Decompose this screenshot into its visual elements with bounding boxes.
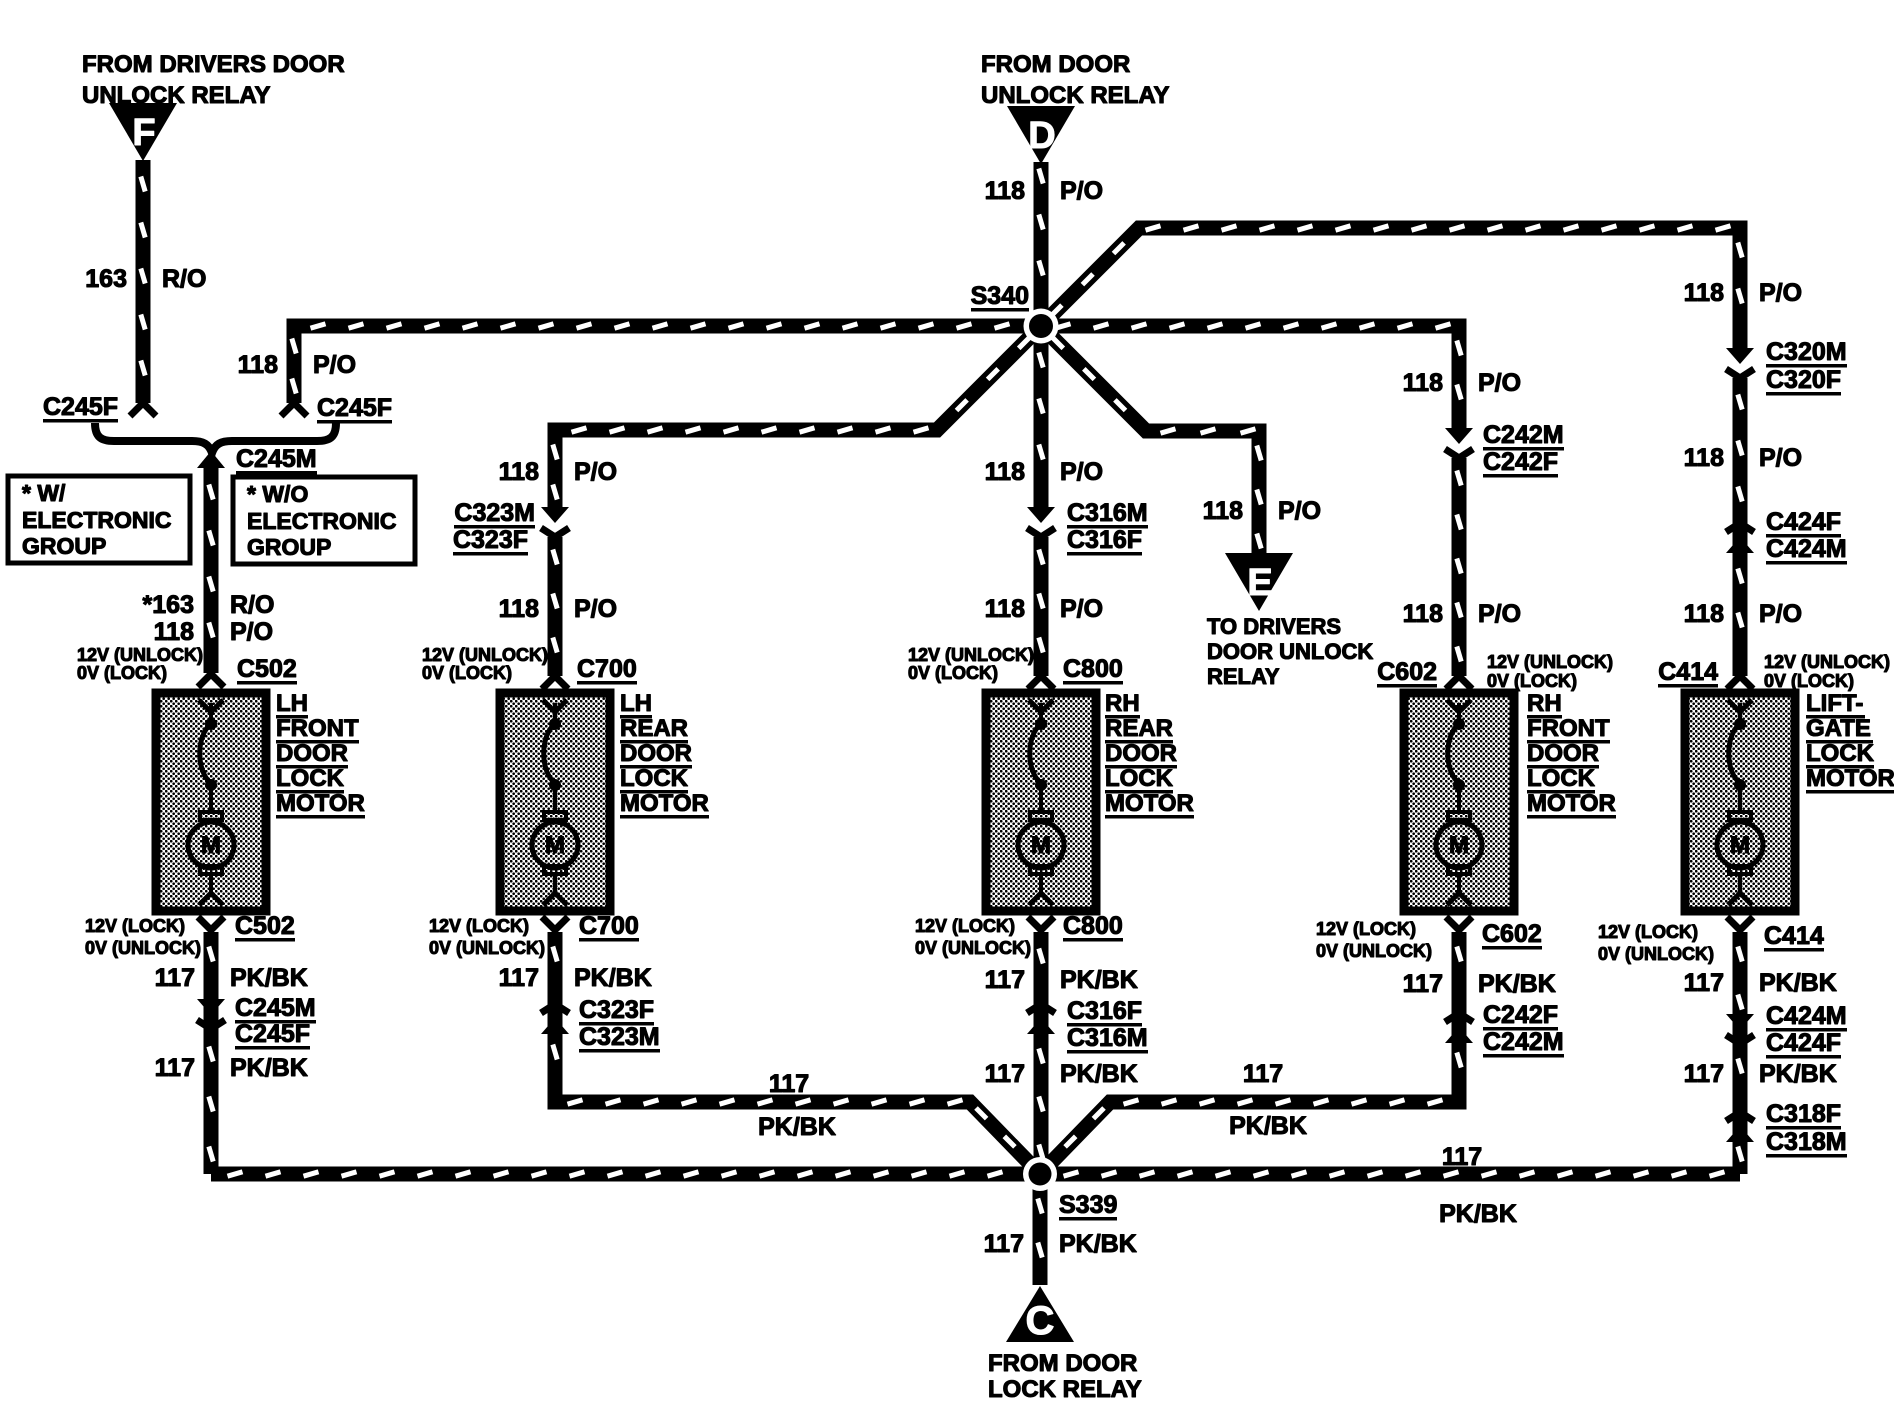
svg-text:RH: RH: [1527, 690, 1562, 717]
svg-text:12V (LOCK): 12V (LOCK): [429, 916, 529, 936]
svg-text:C245F: C245F: [235, 1020, 310, 1048]
svg-text:M: M: [545, 832, 565, 859]
svg-text:FRONT: FRONT: [276, 715, 359, 742]
svg-text:P/O: P/O: [574, 595, 617, 623]
svg-text:ELECTRONIC: ELECTRONIC: [22, 507, 172, 533]
svg-text:12V (LOCK): 12V (LOCK): [85, 916, 185, 936]
svg-text:C316F: C316F: [1067, 997, 1142, 1025]
svg-text:163: 163: [85, 265, 127, 293]
svg-text:P/O: P/O: [1759, 279, 1802, 307]
svg-text:C602: C602: [1377, 658, 1437, 686]
svg-text:RELAY: RELAY: [1207, 664, 1280, 689]
svg-text:118: 118: [1203, 497, 1243, 525]
svg-text:0V (UNLOCK): 0V (UNLOCK): [1598, 944, 1714, 964]
svg-text:12V (UNLOCK): 12V (UNLOCK): [1487, 652, 1613, 672]
svg-text:C245M: C245M: [236, 445, 317, 473]
svg-text:UNLOCK RELAY: UNLOCK RELAY: [82, 82, 270, 109]
svg-text:P/O: P/O: [1278, 497, 1321, 525]
svg-text:118: 118: [1684, 600, 1724, 628]
svg-text:REAR: REAR: [620, 715, 688, 742]
svg-text:MOTOR: MOTOR: [620, 790, 709, 817]
svg-text:C316M: C316M: [1067, 1024, 1148, 1052]
svg-text:C242F: C242F: [1483, 1001, 1558, 1029]
svg-text:F: F: [132, 112, 155, 154]
svg-text:118: 118: [238, 351, 278, 379]
svg-text:MOTOR: MOTOR: [1527, 790, 1616, 817]
svg-text:C424F: C424F: [1766, 508, 1841, 536]
svg-text:LOCK: LOCK: [620, 765, 689, 792]
svg-text:117: 117: [769, 1070, 809, 1098]
svg-text:MOTOR: MOTOR: [1105, 790, 1194, 817]
svg-text:117: 117: [985, 966, 1025, 994]
svg-text:LOCK RELAY: LOCK RELAY: [988, 1376, 1142, 1403]
svg-text:117: 117: [1684, 969, 1724, 997]
svg-text:LIFT-: LIFT-: [1806, 690, 1863, 717]
svg-text:C602: C602: [1482, 920, 1542, 948]
svg-text:117: 117: [155, 964, 195, 992]
svg-text:P/O: P/O: [1478, 600, 1521, 628]
svg-text:C700: C700: [577, 655, 637, 683]
svg-text:FROM DRIVERS DOOR: FROM DRIVERS DOOR: [82, 51, 345, 78]
svg-text:PK/BK: PK/BK: [1759, 969, 1837, 997]
svg-text:FROM DOOR: FROM DOOR: [981, 51, 1130, 78]
svg-text:C320F: C320F: [1766, 366, 1841, 394]
svg-text:LOCK: LOCK: [1527, 765, 1596, 792]
svg-text:117: 117: [985, 1060, 1025, 1088]
svg-text:PK/BK: PK/BK: [1759, 1060, 1837, 1088]
svg-text:12V (LOCK): 12V (LOCK): [1598, 922, 1698, 942]
svg-text:0V (UNLOCK): 0V (UNLOCK): [85, 938, 201, 958]
svg-text:DOOR: DOOR: [620, 740, 692, 767]
svg-text:ELECTRONIC: ELECTRONIC: [247, 508, 397, 534]
svg-text:PK/BK: PK/BK: [230, 964, 308, 992]
svg-text:117: 117: [155, 1054, 195, 1082]
svg-text:* W/: * W/: [22, 480, 66, 506]
svg-text:C323M: C323M: [579, 1023, 660, 1051]
svg-text:0V (UNLOCK): 0V (UNLOCK): [915, 938, 1031, 958]
svg-text:C: C: [1026, 1299, 1055, 1343]
svg-text:C242M: C242M: [1483, 421, 1564, 449]
svg-text:12V (UNLOCK): 12V (UNLOCK): [908, 645, 1034, 665]
svg-text:DOOR: DOOR: [276, 740, 348, 767]
svg-text:12V (UNLOCK): 12V (UNLOCK): [77, 645, 203, 665]
svg-text:118: 118: [499, 458, 539, 486]
svg-text:118: 118: [985, 595, 1025, 623]
svg-text:117: 117: [499, 964, 539, 992]
svg-text:12V (UNLOCK): 12V (UNLOCK): [422, 645, 548, 665]
svg-text:R/O: R/O: [162, 265, 206, 293]
svg-text:C320M: C320M: [1766, 338, 1847, 366]
svg-text:D: D: [1028, 115, 1055, 157]
svg-text:M: M: [1449, 832, 1469, 859]
svg-text:P/O: P/O: [1759, 600, 1802, 628]
svg-text:PK/BK: PK/BK: [574, 964, 652, 992]
svg-text:12V (UNLOCK): 12V (UNLOCK): [1764, 652, 1890, 672]
svg-text:PK/BK: PK/BK: [1060, 1060, 1138, 1088]
svg-text:P/O: P/O: [1060, 595, 1103, 623]
svg-text:C316M: C316M: [1067, 499, 1148, 527]
svg-text:C700: C700: [579, 912, 639, 940]
svg-text:C245F: C245F: [43, 393, 118, 421]
svg-text:REAR: REAR: [1105, 715, 1173, 742]
svg-text:LOCK: LOCK: [1105, 765, 1174, 792]
svg-text:P/O: P/O: [1478, 369, 1521, 397]
svg-text:C323M: C323M: [454, 499, 535, 527]
svg-text:C424F: C424F: [1766, 1029, 1841, 1057]
svg-text:C414: C414: [1764, 922, 1824, 950]
svg-text:GROUP: GROUP: [22, 533, 106, 559]
svg-text:MOTOR: MOTOR: [1806, 765, 1894, 792]
svg-text:C323F: C323F: [453, 526, 528, 554]
svg-text:C424M: C424M: [1766, 1002, 1847, 1030]
svg-text:PK/BK: PK/BK: [1439, 1200, 1517, 1228]
svg-text:PK/BK: PK/BK: [758, 1113, 836, 1141]
svg-text:117: 117: [1442, 1143, 1482, 1171]
svg-text:C502: C502: [237, 655, 297, 683]
svg-text:0V (UNLOCK): 0V (UNLOCK): [1316, 941, 1432, 961]
svg-text:MOTOR: MOTOR: [276, 790, 365, 817]
svg-text:P/O: P/O: [1060, 177, 1103, 205]
svg-text:C245M: C245M: [235, 994, 316, 1022]
svg-text:*163: *163: [143, 591, 194, 619]
svg-text:C414: C414: [1658, 658, 1718, 686]
svg-text:117: 117: [1684, 1060, 1724, 1088]
svg-text:S340: S340: [971, 282, 1029, 310]
svg-text:118: 118: [985, 458, 1025, 486]
svg-text:GATE: GATE: [1806, 715, 1871, 742]
svg-text:C800: C800: [1063, 655, 1123, 683]
svg-text:0V (LOCK): 0V (LOCK): [422, 663, 512, 683]
svg-text:DOOR: DOOR: [1527, 740, 1599, 767]
svg-text:M: M: [201, 832, 221, 859]
svg-text:0V (UNLOCK): 0V (UNLOCK): [429, 938, 545, 958]
svg-text:117: 117: [1243, 1060, 1283, 1088]
svg-text:E: E: [1247, 562, 1272, 604]
svg-text:LOCK: LOCK: [1806, 740, 1875, 767]
svg-text:0V (LOCK): 0V (LOCK): [1764, 671, 1854, 691]
svg-text:C316F: C316F: [1067, 526, 1142, 554]
svg-text:FROM DOOR: FROM DOOR: [988, 1350, 1137, 1377]
svg-text:P/O: P/O: [574, 458, 617, 486]
svg-text:0V (LOCK): 0V (LOCK): [1487, 671, 1577, 691]
svg-text:118: 118: [985, 177, 1025, 205]
svg-text:117: 117: [1403, 970, 1443, 998]
svg-text:0V (LOCK): 0V (LOCK): [77, 663, 167, 683]
svg-text:C242M: C242M: [1483, 1028, 1564, 1056]
svg-text:DOOR UNLOCK: DOOR UNLOCK: [1207, 639, 1373, 664]
svg-text:C502: C502: [235, 912, 295, 940]
svg-text:FRONT: FRONT: [1527, 715, 1610, 742]
svg-text:12V (LOCK): 12V (LOCK): [1316, 919, 1416, 939]
svg-text:118: 118: [154, 618, 194, 646]
svg-text:P/O: P/O: [230, 618, 273, 646]
svg-text:118: 118: [1403, 600, 1443, 628]
svg-text:118: 118: [1684, 279, 1724, 307]
svg-text:UNLOCK RELAY: UNLOCK RELAY: [981, 82, 1169, 109]
svg-text:P/O: P/O: [313, 351, 356, 379]
svg-text:118: 118: [1684, 444, 1724, 472]
svg-text:PK/BK: PK/BK: [230, 1054, 308, 1082]
svg-text:C318F: C318F: [1766, 1100, 1841, 1128]
svg-text:LOCK: LOCK: [276, 765, 345, 792]
svg-text:118: 118: [1403, 369, 1443, 397]
svg-text:GROUP: GROUP: [247, 534, 331, 560]
svg-text:RH: RH: [1105, 690, 1140, 717]
svg-text:S339: S339: [1059, 1191, 1117, 1219]
svg-text:0V (LOCK): 0V (LOCK): [908, 663, 998, 683]
svg-text:P/O: P/O: [1759, 444, 1802, 472]
svg-text:M: M: [1730, 832, 1750, 859]
svg-text:C424M: C424M: [1766, 535, 1847, 563]
svg-text:PK/BK: PK/BK: [1059, 1230, 1137, 1258]
svg-text:C323F: C323F: [579, 996, 654, 1024]
svg-text:PK/BK: PK/BK: [1229, 1112, 1307, 1140]
svg-text:R/O: R/O: [230, 591, 274, 619]
svg-text:C318M: C318M: [1766, 1128, 1847, 1156]
svg-text:LH: LH: [620, 690, 652, 717]
svg-text:C245F: C245F: [317, 394, 392, 422]
svg-text:C800: C800: [1063, 912, 1123, 940]
svg-text:M: M: [1031, 832, 1051, 859]
svg-text:118: 118: [499, 595, 539, 623]
svg-text:TO DRIVERS: TO DRIVERS: [1207, 614, 1341, 639]
svg-text:12V (LOCK): 12V (LOCK): [915, 916, 1015, 936]
svg-text:* W/O: * W/O: [247, 481, 308, 507]
svg-text:C242F: C242F: [1483, 448, 1558, 476]
svg-text:P/O: P/O: [1060, 458, 1103, 486]
svg-text:PK/BK: PK/BK: [1060, 966, 1138, 994]
svg-text:PK/BK: PK/BK: [1478, 970, 1556, 998]
svg-text:DOOR: DOOR: [1105, 740, 1177, 767]
svg-text:LH: LH: [276, 690, 308, 717]
svg-text:117: 117: [984, 1230, 1024, 1258]
